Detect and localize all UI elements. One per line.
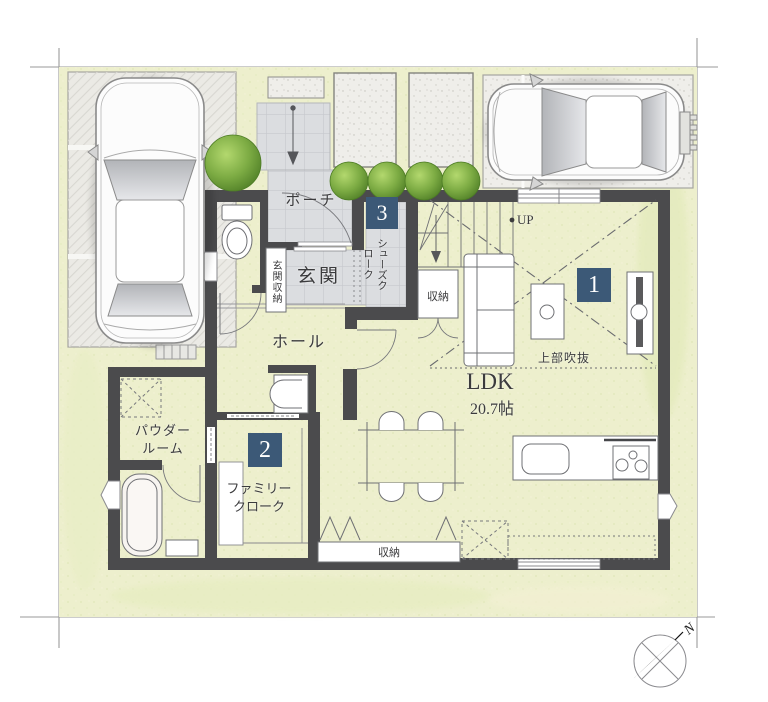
window-bottom xyxy=(518,559,600,569)
up-marker-dot xyxy=(510,218,515,223)
entrance-storage-label: 玄関収納 xyxy=(268,252,283,312)
floor-plan-drawing: N xyxy=(0,0,768,702)
badge-1-ldk: 1 xyxy=(577,268,611,302)
badge-3-shoes-cloak: 3 xyxy=(366,197,398,229)
powder-room-label-line1: パウダー xyxy=(113,420,213,439)
up-label: UP xyxy=(517,212,534,228)
entrance-label: 玄関 xyxy=(279,261,359,288)
ldk-label: LDK xyxy=(440,369,540,395)
badge-2-family-cloak: 2 xyxy=(248,433,282,467)
compass-north-label: N xyxy=(681,620,699,639)
void-above-label: 上部吹抜 xyxy=(514,349,614,366)
compass-icon: N xyxy=(633,620,699,687)
washbasin xyxy=(270,375,308,413)
family-cloak-label-line1: ファミリー xyxy=(209,478,309,497)
shoes-cloak-label: シューズクローク xyxy=(360,235,388,293)
hall-label: ホール xyxy=(259,328,339,352)
floor-plan-page: N ポーチ 玄関 玄関収納 シューズクローク 収納 UP ホール LDK 20.… xyxy=(0,0,768,702)
sofa xyxy=(464,254,514,366)
family-cloak-label-line2: クローク xyxy=(209,496,309,515)
ldk-size-label: 20.7帖 xyxy=(442,395,542,419)
car-right xyxy=(484,74,697,190)
porch-label: ポーチ xyxy=(271,189,351,210)
stair-storage-label: 収納 xyxy=(414,288,462,304)
ldk-storage-label: 収納 xyxy=(349,544,429,560)
toilet xyxy=(222,205,252,259)
drain-grate xyxy=(156,345,196,359)
coffee-table xyxy=(531,284,564,339)
kitchen-counter xyxy=(513,436,658,480)
car-left xyxy=(88,76,214,348)
tv-board xyxy=(627,272,653,354)
powder-room-label-line2: ルーム xyxy=(113,438,213,457)
